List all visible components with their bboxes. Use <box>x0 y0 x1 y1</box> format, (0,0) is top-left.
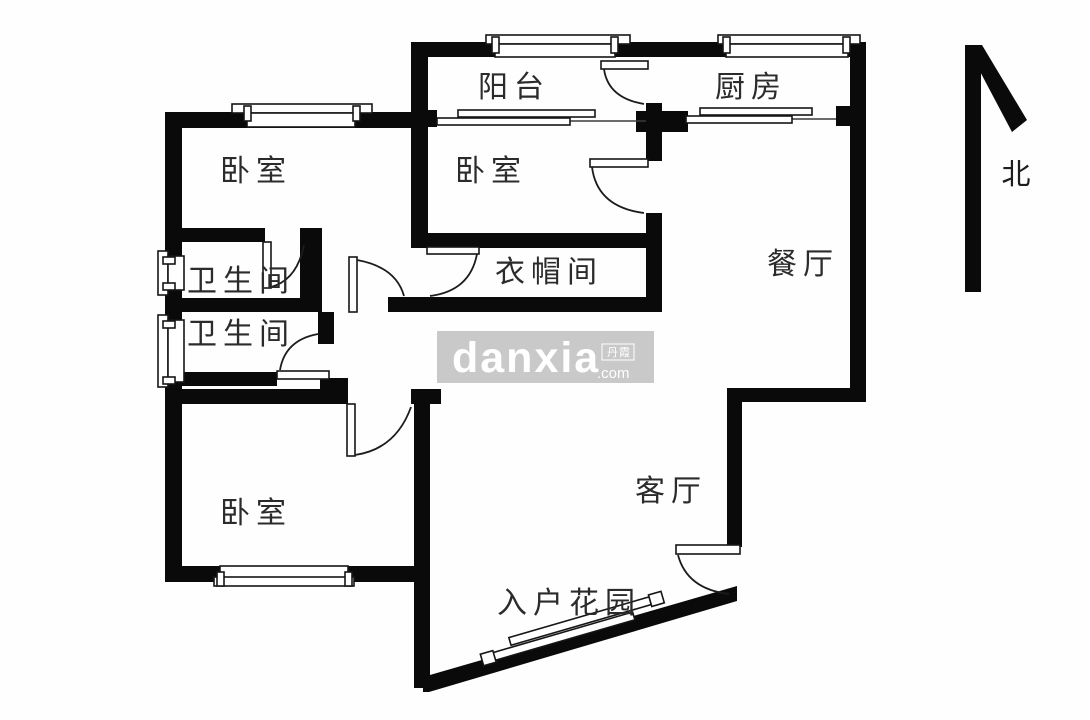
door-balcony-kitchen <box>601 61 648 104</box>
wall-bathroom1-top <box>165 228 265 242</box>
room-label-kitchen: 厨房 <box>715 71 787 104</box>
slider-balcony-bedroom2 <box>437 110 646 125</box>
wall-kitchen-divider-stub <box>836 106 850 126</box>
room-label-bathroom-lower: 卫生间 <box>187 318 295 351</box>
room-label-bedroom-bottom: 卧室 <box>220 497 292 530</box>
floor-plan-svg: danxia 丹霞 .com <box>0 0 1090 720</box>
window-bathroom2-left <box>158 315 184 387</box>
slider-kitchen-dining <box>686 108 836 123</box>
wall-bathroom2-right <box>318 312 334 344</box>
room-label-bathroom-upper: 卫生间 <box>187 265 295 298</box>
door-bedroom2 <box>590 159 648 213</box>
door-living-garden <box>676 545 740 594</box>
wall-closet-bottom <box>388 297 662 312</box>
door-closet <box>427 247 479 296</box>
north-label: 北 <box>1001 159 1030 191</box>
wall-right-exterior <box>850 42 866 398</box>
wall-balcony-sill-stub <box>411 110 437 127</box>
north-arrow: 北 <box>965 45 1031 292</box>
window-balcony-top <box>486 35 630 57</box>
room-label-walk-in-closet: 衣帽间 <box>495 256 603 289</box>
door-bedroom3 <box>347 404 411 456</box>
room-label-bedroom-top-left: 卧室 <box>220 155 292 188</box>
wall-closet-top <box>411 233 662 248</box>
window-kitchen-top <box>718 35 860 57</box>
room-label-bedroom-top-center: 卧室 <box>455 155 527 188</box>
room-label-dining-room: 餐厅 <box>767 248 839 281</box>
watermark-logo-text: 丹霞 <box>607 346 631 359</box>
window-bathroom1-left <box>158 251 184 295</box>
watermark: danxia 丹霞 .com <box>437 331 654 383</box>
wall-dining-step <box>727 388 866 402</box>
room-label-entry-garden: 入户花园 <box>497 587 641 620</box>
doors <box>263 61 740 594</box>
wall-garden-left <box>414 566 430 688</box>
wall-living-right <box>727 388 742 547</box>
wall-balcony-left <box>411 42 428 248</box>
north-arrow-shaft <box>965 45 981 292</box>
watermark-brand-text: danxia <box>452 334 600 382</box>
wall-bedroom3-right <box>414 389 430 582</box>
watermark-suffix-text: .com <box>597 365 630 382</box>
window-bedroom3-bottom <box>214 566 354 586</box>
room-label-balcony: 阳台 <box>478 71 550 104</box>
window-bedroom1-top <box>232 104 372 127</box>
wall-bedroom3-top-left <box>165 389 348 404</box>
room-label-living-room: 客厅 <box>635 475 707 508</box>
floor-plan-image: danxia 丹霞 .com <box>0 0 1090 720</box>
wall-bathroom-divider <box>165 298 322 312</box>
